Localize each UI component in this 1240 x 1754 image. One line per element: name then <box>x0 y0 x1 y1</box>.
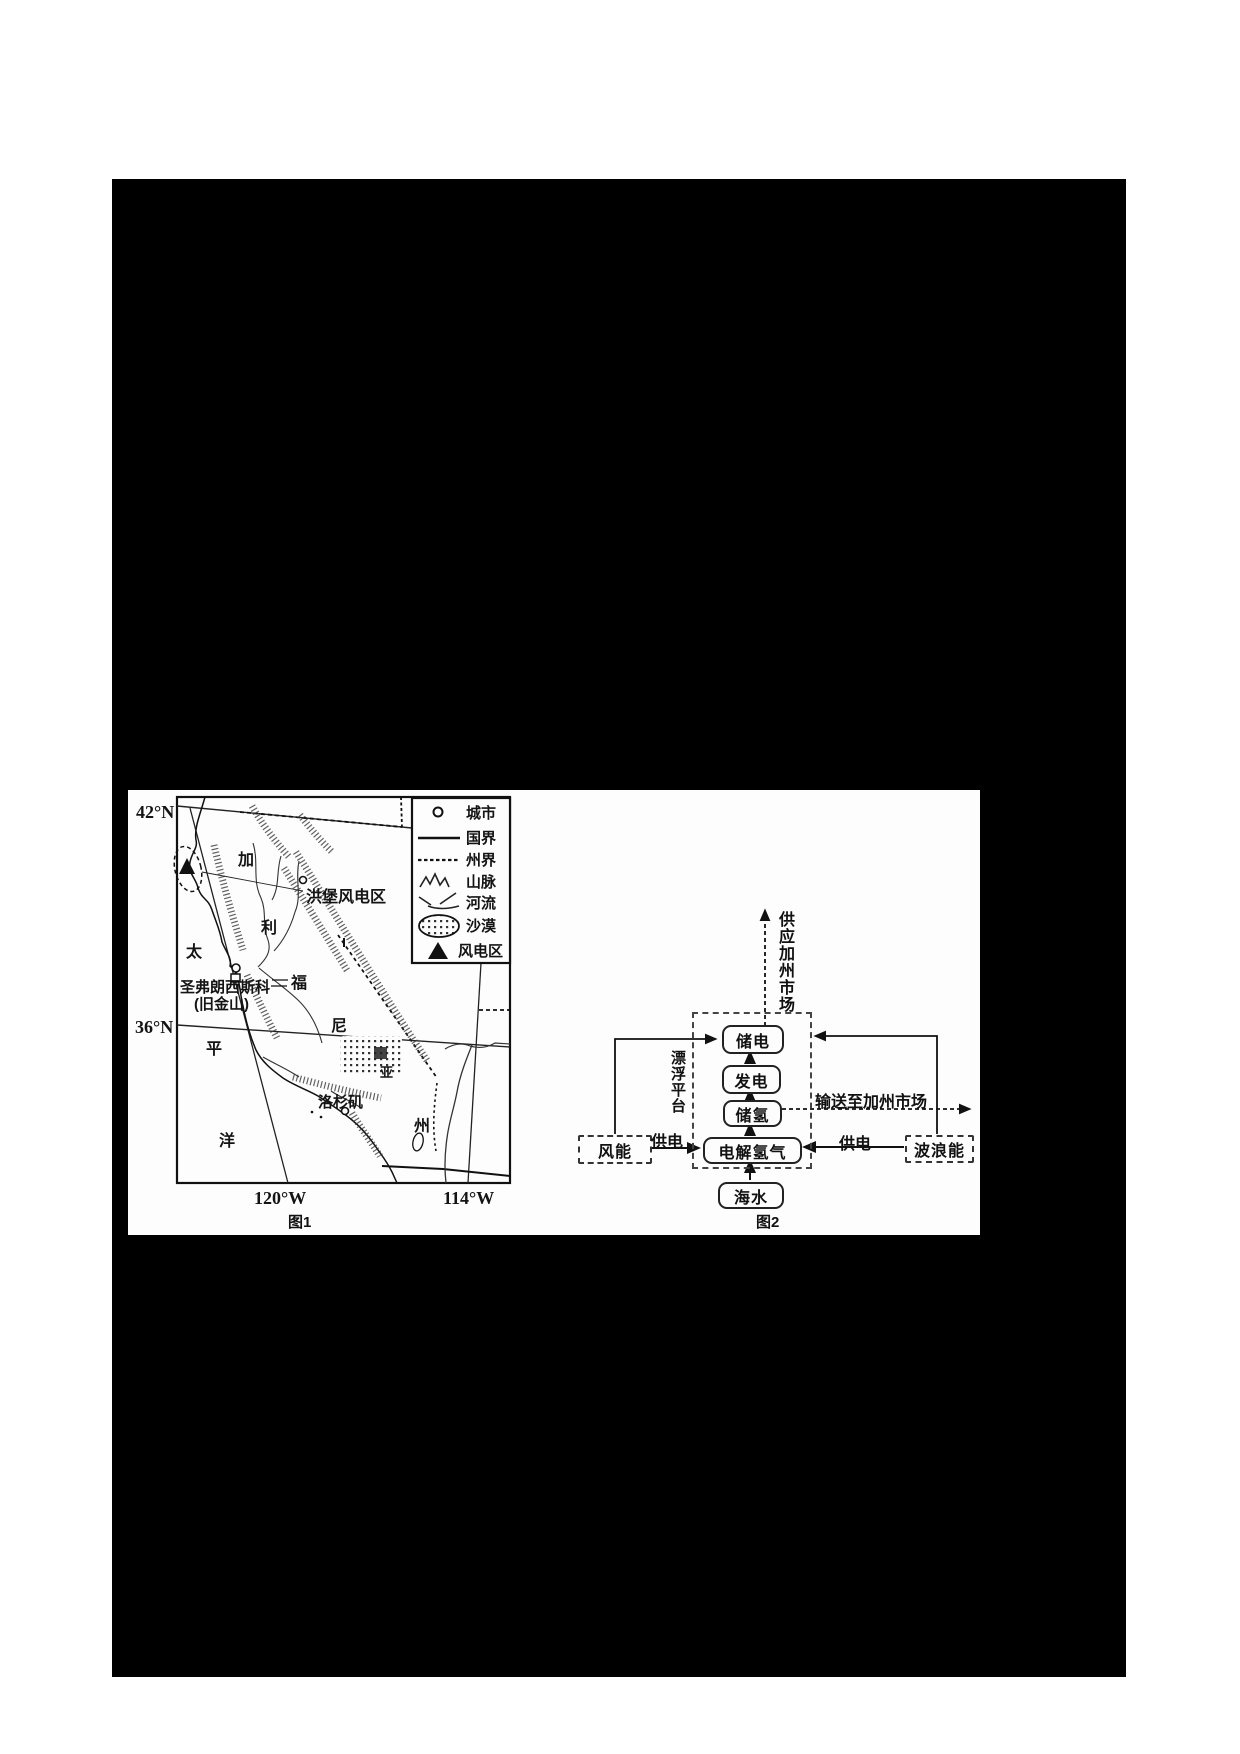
legend-desert-label: 沙漠 <box>466 917 497 935</box>
state-char-5: 亚 <box>380 1065 393 1080</box>
seawater-box: 海水 <box>718 1182 784 1209</box>
supply-california-market-label: 供应加州市场 <box>772 911 796 1013</box>
colorado-river <box>445 1045 472 1183</box>
national-border-mexico <box>382 1166 510 1176</box>
lon-114w-label: 114°W <box>443 1188 494 1208</box>
desert-dark-mark <box>374 1047 387 1059</box>
state-border-colorado-river <box>434 1083 437 1151</box>
state-char-1: 加 <box>237 851 254 869</box>
generate-power-box: 发电 <box>722 1065 781 1094</box>
legend-mountains-label: 山脉 <box>466 873 497 891</box>
generate-power-label: 发电 <box>734 1068 768 1092</box>
store-power-label: 储电 <box>736 1028 770 1052</box>
channel-island-dot <box>320 1116 323 1119</box>
electrolysis-label: 电解氢气 <box>718 1139 786 1163</box>
peninsular-range <box>352 1113 380 1156</box>
lat-36n-label: 36°N <box>135 1017 173 1037</box>
legend-city-label: 城市 <box>466 804 496 822</box>
wind-energy-box: 风能 <box>578 1135 652 1164</box>
los-angeles-label: 洛杉矶 <box>318 1093 363 1111</box>
legend-river-label: 河流 <box>466 894 496 912</box>
state-char-2: 利 <box>261 918 277 937</box>
sierra-nevada <box>296 852 428 1062</box>
lat-42n-label: 42°N <box>136 802 174 822</box>
city-marker-san-francisco <box>232 964 240 972</box>
wind-zone-triangle-icon <box>179 858 195 874</box>
state-char-6: 州 <box>413 1117 430 1135</box>
store-hydrogen-box: 储氢 <box>723 1100 782 1127</box>
parallel-42n-line <box>177 806 412 828</box>
salton-sea <box>411 1132 425 1152</box>
figure2-caption: 图2 <box>756 1211 779 1232</box>
legend-city-icon <box>434 808 443 817</box>
wind-energy-label: 风能 <box>598 1138 632 1162</box>
store-hydrogen-label: 储氢 <box>735 1102 769 1126</box>
map-legend: 城市 国界 州界 山脉 河流 沙漠 风电区 <box>412 798 510 963</box>
legend-national-border-label: 国界 <box>466 830 496 847</box>
humboldt-wind-area-label: 洪堡风电区 <box>306 887 386 906</box>
legend-wind-zone-label: 风电区 <box>458 942 503 960</box>
lon-120w-label: 120°W <box>254 1188 306 1208</box>
meridian-114w-line <box>468 963 481 1183</box>
legend-state-border-label: 州界 <box>465 852 496 869</box>
channel-island-dot <box>311 1111 314 1114</box>
store-power-box: 储电 <box>722 1025 784 1054</box>
electrolysis-box: 电解氢气 <box>703 1137 802 1164</box>
san-francisco-alt-label: (旧金山) <box>194 995 249 1013</box>
state-char-3: 福 <box>290 973 307 992</box>
ocean-char-3: 洋 <box>219 1131 235 1150</box>
ocean-char-1: 太 <box>185 942 203 961</box>
legend-desert-icon <box>419 915 459 937</box>
state-border-north-stub <box>401 797 402 828</box>
figure1-caption: 图1 <box>288 1211 311 1232</box>
wave-energy-label: 波浪能 <box>914 1137 965 1161</box>
seawater-label: 海水 <box>734 1184 768 1208</box>
map-figure: 42°N 36°N 120°W 114°W 太 平 洋 加 利 福 尼 亚 州 … <box>135 797 510 1208</box>
supply-power-left-label: 供电 <box>651 1128 683 1152</box>
state-char-4: 尼 <box>331 1017 347 1035</box>
sf-label-leader <box>271 980 288 986</box>
san-francisco-label: 圣弗朗西斯科 <box>179 978 270 996</box>
transport-to-california-label: 输送至加州市场 <box>815 1088 927 1112</box>
city-marker-north <box>300 877 307 884</box>
ocean-char-2: 平 <box>206 1040 222 1058</box>
figures-panel: 42°N 36°N 120°W 114°W 太 平 洋 加 利 福 尼 亚 州 … <box>128 790 980 1235</box>
supply-power-right-label: 供电 <box>839 1130 871 1154</box>
floating-platform-label: 漂浮平台 <box>667 1050 688 1120</box>
arrow-wave-to-store-power <box>817 1036 937 1134</box>
wave-energy-box: 波浪能 <box>905 1135 974 1163</box>
figures-artwork: 42°N 36°N 120°W 114°W 太 平 洋 加 利 福 尼 亚 州 … <box>128 790 980 1235</box>
